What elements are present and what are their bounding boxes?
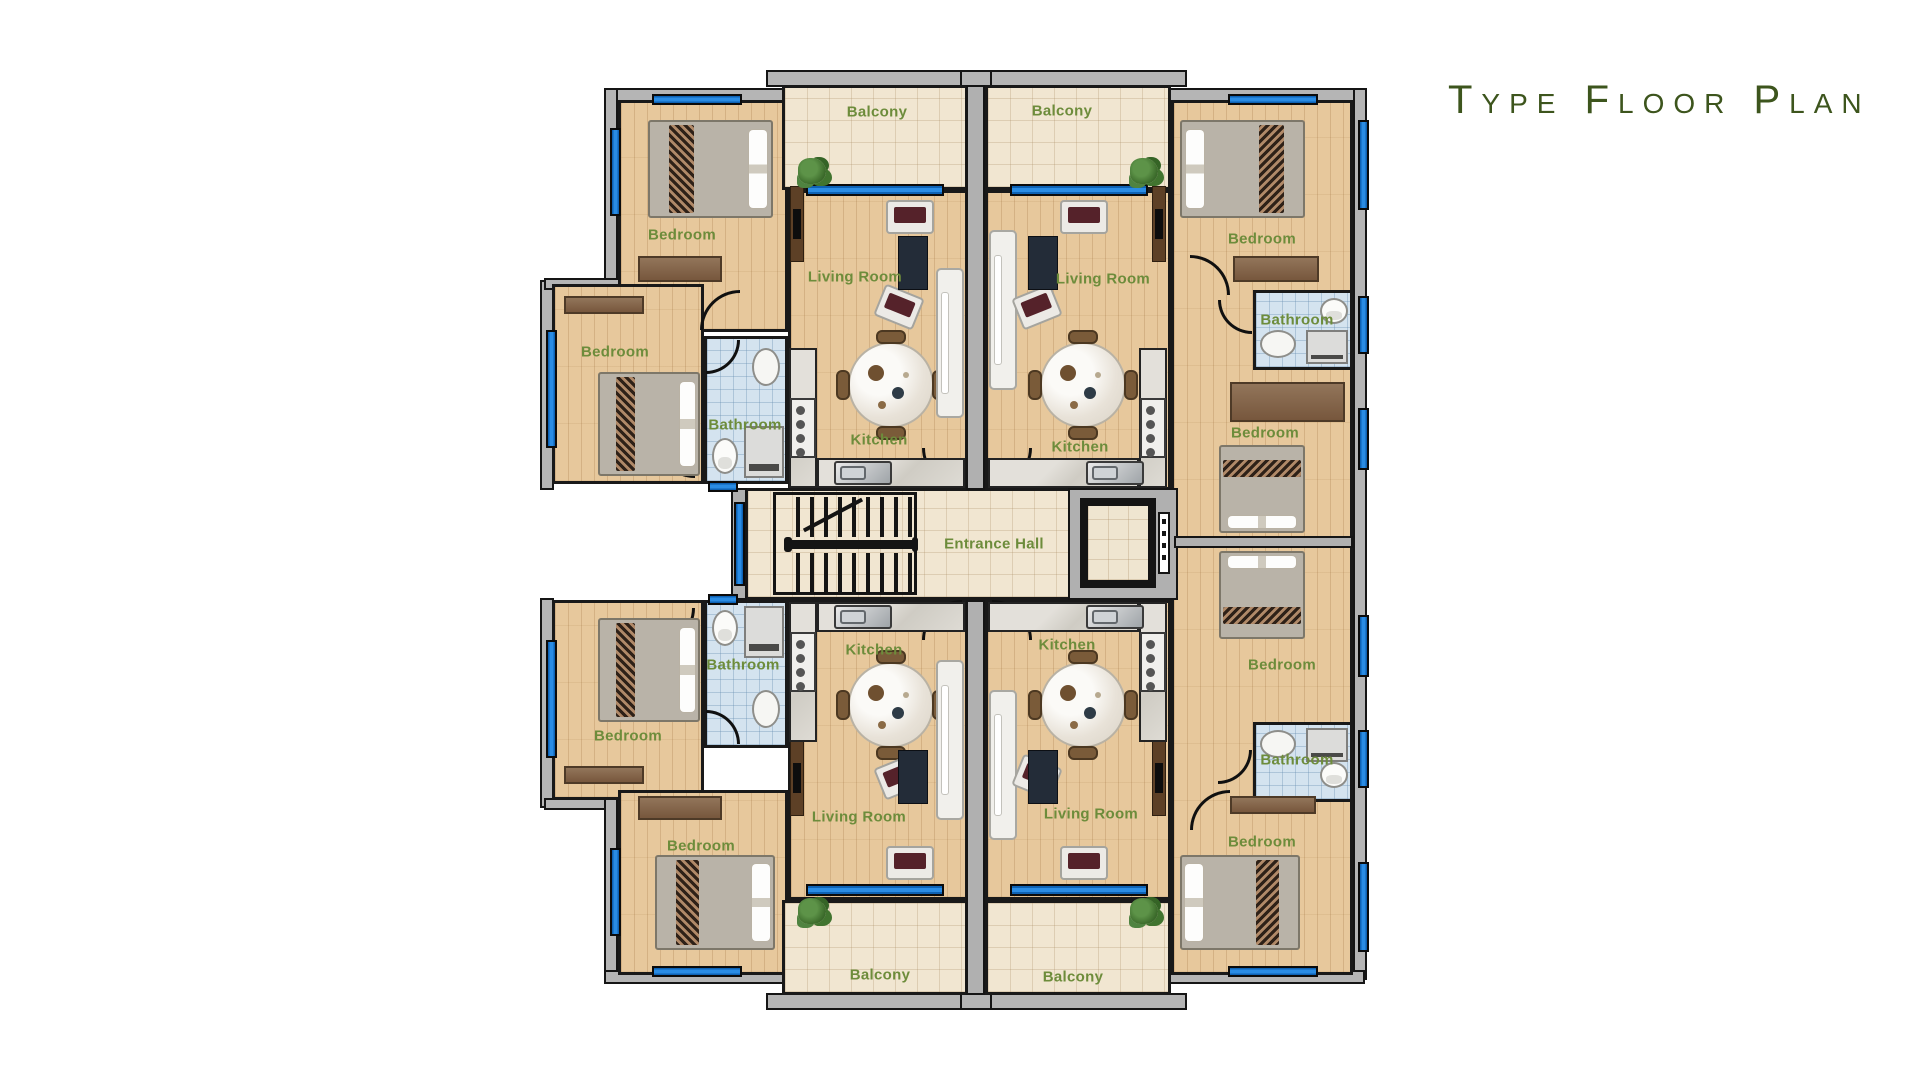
bed — [1180, 120, 1305, 218]
floor-plan-canvas: Balcony Balcony Bedroom Living Room Livi… — [0, 0, 1920, 1080]
bed — [598, 372, 700, 476]
label-balcony-bottom-left: Balcony — [850, 967, 910, 984]
window-bathroom-top-right — [1358, 296, 1369, 354]
window-bedroom-top-left — [652, 94, 742, 105]
dining-chair — [1124, 690, 1138, 720]
elevator-rail — [1158, 512, 1170, 574]
label-bedroom-top-right-corner: Bedroom — [1228, 231, 1296, 248]
dining-chair — [876, 330, 906, 344]
stair-flight-lower — [796, 553, 916, 593]
window-bedroom-left-corner-side — [610, 128, 621, 216]
bed — [1219, 445, 1305, 533]
dining-chair — [836, 370, 850, 400]
sofa — [936, 660, 964, 820]
armchair — [886, 846, 934, 880]
label-bathroom-bottom-left: Bathroom — [706, 657, 779, 674]
label-living-room-top-right: Living Room — [1056, 271, 1150, 288]
bed — [648, 120, 773, 218]
label-living-room-top-left: Living Room — [808, 269, 902, 286]
shower — [744, 606, 784, 658]
label-kitchen-top-right: Kitchen — [1051, 439, 1108, 456]
parapet-bottom-right-balcony — [977, 993, 1187, 1010]
bed — [598, 618, 700, 722]
armchair — [886, 200, 934, 234]
stove — [790, 632, 816, 692]
plant — [798, 158, 826, 184]
armchair — [1060, 200, 1108, 234]
label-living-room-bottom-left: Living Room — [812, 809, 906, 826]
wall-center-divider-bottom — [966, 600, 985, 995]
wardrobe — [1230, 382, 1345, 422]
label-bedroom-bottom-right-corner: Bedroom — [1228, 834, 1296, 851]
wardrobe — [638, 256, 722, 282]
kitchen-sink — [834, 605, 892, 629]
wall-center-divider-top — [966, 85, 985, 490]
bathroom-sink — [752, 690, 780, 728]
kitchen-sink — [1086, 605, 1144, 629]
window-bedroom-right-mid-lower — [1358, 615, 1369, 677]
wall-right — [1353, 88, 1367, 980]
tv-cabinet — [1152, 740, 1166, 816]
shower — [1306, 330, 1348, 364]
page-title: Type Floor Plan — [1448, 78, 1871, 123]
sofa — [936, 268, 964, 418]
wardrobe — [638, 796, 722, 820]
bathroom-sink — [752, 348, 780, 386]
sofa — [989, 690, 1017, 840]
stove — [1140, 632, 1166, 692]
dining-table — [1040, 662, 1126, 748]
stove — [790, 398, 816, 458]
kitchen-sink — [834, 461, 892, 485]
label-bathroom-bottom-right: Bathroom — [1260, 752, 1333, 769]
wardrobe — [1233, 256, 1319, 282]
label-bedroom-bottom-left-corner: Bedroom — [667, 838, 735, 855]
window-bedroom-left-lower-side — [546, 640, 557, 758]
stair-handrail-cap-left — [784, 537, 792, 552]
label-bedroom-top-left-corner: Bedroom — [648, 227, 716, 244]
label-kitchen-bottom-left: Kitchen — [845, 642, 902, 659]
staircase — [773, 492, 917, 595]
dining-table — [848, 342, 934, 428]
label-bedroom-right-mid-lower: Bedroom — [1248, 657, 1316, 674]
stove — [1140, 398, 1166, 458]
stair-handrail-cap-right — [912, 537, 918, 552]
window-balcony-door-top-right — [1010, 184, 1148, 196]
toilet — [712, 438, 738, 474]
desk — [1028, 236, 1058, 290]
label-bathroom-top-left: Bathroom — [708, 417, 781, 434]
window-bedroom-bottom-left — [652, 966, 742, 977]
dining-chair — [1068, 746, 1098, 760]
window-bedroom-bottom-right-side — [1358, 862, 1369, 952]
dining-chair — [1028, 370, 1042, 400]
dining-chair — [1124, 370, 1138, 400]
tv-cabinet — [1152, 186, 1166, 262]
window-bedroom-right-mid-upper — [1358, 408, 1369, 470]
label-bedroom-right-mid-upper: Bedroom — [1231, 425, 1299, 442]
wardrobe — [564, 766, 644, 784]
elevator-cabin — [1080, 498, 1156, 588]
desk — [898, 236, 928, 290]
label-balcony-top-right: Balcony — [1032, 103, 1092, 120]
toilet — [712, 610, 738, 646]
stairwell-window — [734, 502, 745, 586]
dining-chair — [1028, 690, 1042, 720]
dining-chair — [836, 690, 850, 720]
window-balcony-door-bottom-left — [806, 884, 944, 896]
window-bathroom-upper-left — [708, 481, 738, 492]
window-balcony-door-top-left — [806, 184, 944, 196]
tv-cabinet — [790, 740, 804, 816]
plant — [1130, 158, 1158, 184]
bed — [1219, 551, 1305, 639]
tv-cabinet — [790, 186, 804, 262]
window-bedroom-left-upper-side — [546, 330, 557, 448]
sofa — [989, 230, 1017, 390]
desk — [898, 750, 928, 804]
plant — [1130, 898, 1158, 924]
window-bathroom-bottom-right — [1358, 730, 1369, 788]
shower — [744, 426, 784, 478]
window-bathroom-lower-left — [708, 594, 738, 605]
wall-bedroom-divider-right — [1174, 536, 1353, 548]
dining-table — [1040, 342, 1126, 428]
dining-table — [848, 662, 934, 748]
window-bedroom-bottom-right — [1228, 966, 1318, 977]
kitchen-sink — [1086, 461, 1144, 485]
label-bedroom-left-upper: Bedroom — [581, 344, 649, 361]
label-kitchen-bottom-right: Kitchen — [1038, 637, 1095, 654]
armchair — [1060, 846, 1108, 880]
label-entrance-hall: Entrance Hall — [944, 536, 1044, 553]
wardrobe — [564, 296, 644, 314]
label-living-room-bottom-right: Living Room — [1044, 806, 1138, 823]
window-bedroom-right-corner-side — [1358, 120, 1369, 210]
window-balcony-door-bottom-right — [1010, 884, 1148, 896]
wardrobe — [1230, 796, 1316, 814]
bathroom-sink — [1260, 330, 1296, 358]
label-balcony-top-left: Balcony — [847, 104, 907, 121]
stair-handrail — [788, 540, 916, 549]
plant — [798, 898, 826, 924]
bed — [655, 855, 775, 950]
window-bedroom-top-right — [1228, 94, 1318, 105]
label-bedroom-left-lower: Bedroom — [594, 728, 662, 745]
dining-chair — [1068, 330, 1098, 344]
window-bedroom-bottom-left-side — [610, 848, 621, 936]
label-bathroom-top-right: Bathroom — [1260, 312, 1333, 329]
desk — [1028, 750, 1058, 804]
label-balcony-bottom-right: Balcony — [1043, 969, 1103, 986]
parapet-bottom-left-balcony — [766, 993, 976, 1010]
bed — [1180, 855, 1300, 950]
label-kitchen-top-left: Kitchen — [850, 432, 907, 449]
